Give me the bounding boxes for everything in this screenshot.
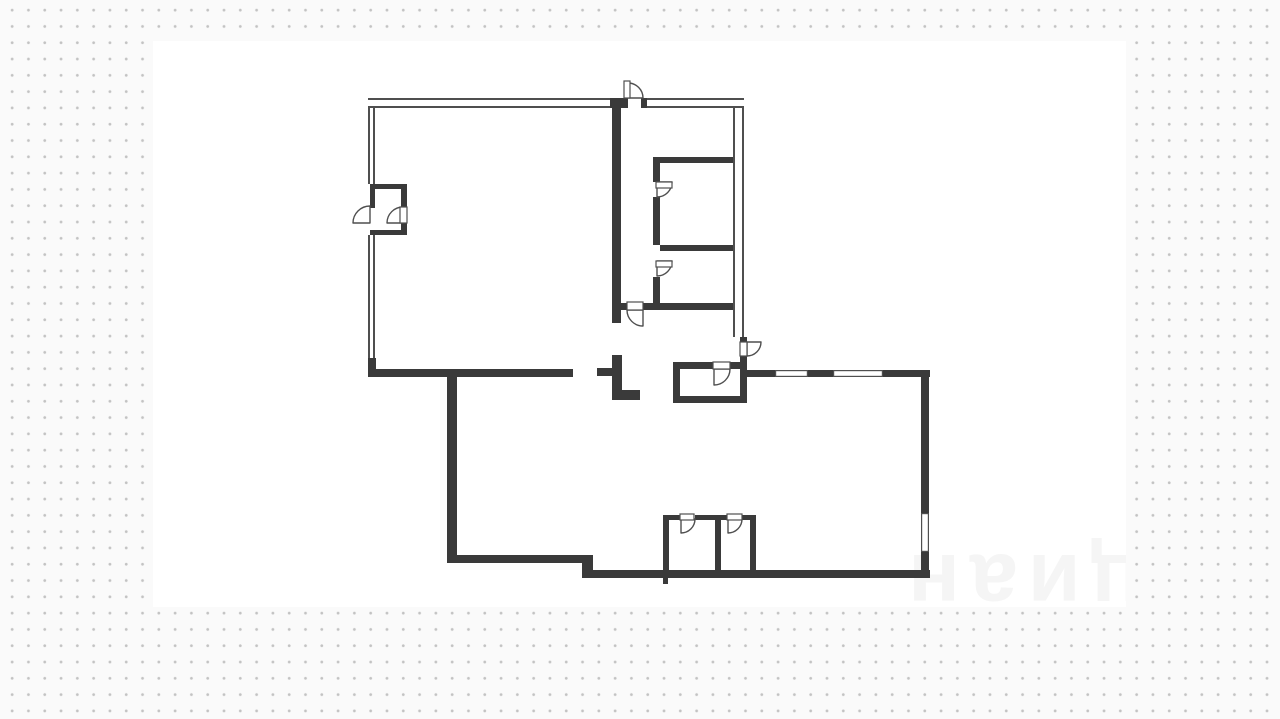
door-leaf bbox=[713, 362, 730, 369]
wall-segment bbox=[653, 163, 660, 182]
wall-segment bbox=[641, 98, 647, 108]
door-arc bbox=[627, 310, 643, 326]
wall-segment bbox=[715, 520, 721, 572]
wall-segment bbox=[597, 368, 612, 376]
wall-segment bbox=[368, 369, 573, 377]
wall-segment bbox=[663, 578, 668, 584]
door-arc bbox=[681, 519, 695, 533]
wall-segment bbox=[447, 371, 457, 563]
window bbox=[776, 371, 808, 377]
door-arc bbox=[714, 369, 730, 385]
wall-segment bbox=[370, 184, 375, 208]
wall-segment bbox=[612, 106, 621, 323]
wall-segment bbox=[653, 157, 733, 163]
thin-wall-line bbox=[373, 235, 375, 358]
door-leaf bbox=[624, 81, 630, 98]
wall-segment bbox=[695, 515, 727, 520]
wall-segment bbox=[740, 337, 747, 342]
window bbox=[834, 371, 883, 377]
door-leaf bbox=[400, 207, 407, 223]
thin-wall-line bbox=[368, 235, 370, 358]
wall-segment bbox=[622, 390, 640, 400]
wall-segment bbox=[673, 362, 713, 369]
wall-segment bbox=[653, 197, 660, 245]
wall-segment bbox=[660, 245, 733, 251]
wall-segment bbox=[808, 370, 833, 377]
wall-segment bbox=[401, 184, 407, 207]
door-leaf bbox=[727, 514, 742, 520]
wall-segment bbox=[921, 552, 929, 578]
wall-segment bbox=[673, 396, 747, 403]
wall-segment bbox=[589, 570, 930, 578]
window bbox=[922, 514, 929, 552]
floorplan-svg bbox=[0, 0, 1280, 719]
door-arc bbox=[353, 206, 370, 223]
wall-segment bbox=[370, 230, 407, 235]
wall-segment bbox=[643, 303, 733, 310]
door-leaf bbox=[656, 182, 672, 188]
thin-wall-line bbox=[373, 106, 375, 184]
wall-segment bbox=[742, 515, 756, 520]
thin-wall-line bbox=[368, 106, 610, 108]
wall-segment bbox=[663, 515, 680, 520]
wall-segment bbox=[747, 370, 775, 377]
door-leaf bbox=[740, 342, 747, 356]
thin-wall-line bbox=[647, 98, 744, 100]
wall-segment bbox=[663, 520, 669, 572]
door-leaf bbox=[627, 302, 643, 310]
thin-wall-line bbox=[733, 106, 735, 337]
thin-wall-line bbox=[647, 106, 744, 108]
door-leaf bbox=[656, 261, 672, 267]
page-background: циан bbox=[0, 0, 1280, 719]
wall-segment bbox=[921, 370, 929, 513]
door-arc bbox=[728, 519, 742, 533]
wall-segment bbox=[740, 356, 747, 403]
wall-segment bbox=[612, 355, 622, 400]
thin-wall-line bbox=[368, 98, 610, 100]
door-leaf bbox=[680, 514, 694, 520]
thin-wall-line bbox=[368, 106, 370, 184]
thin-wall-line bbox=[742, 106, 744, 337]
wall-segment bbox=[750, 520, 756, 572]
wall-segment bbox=[621, 303, 627, 310]
wall-segment bbox=[447, 555, 589, 563]
door-arc bbox=[747, 342, 761, 356]
